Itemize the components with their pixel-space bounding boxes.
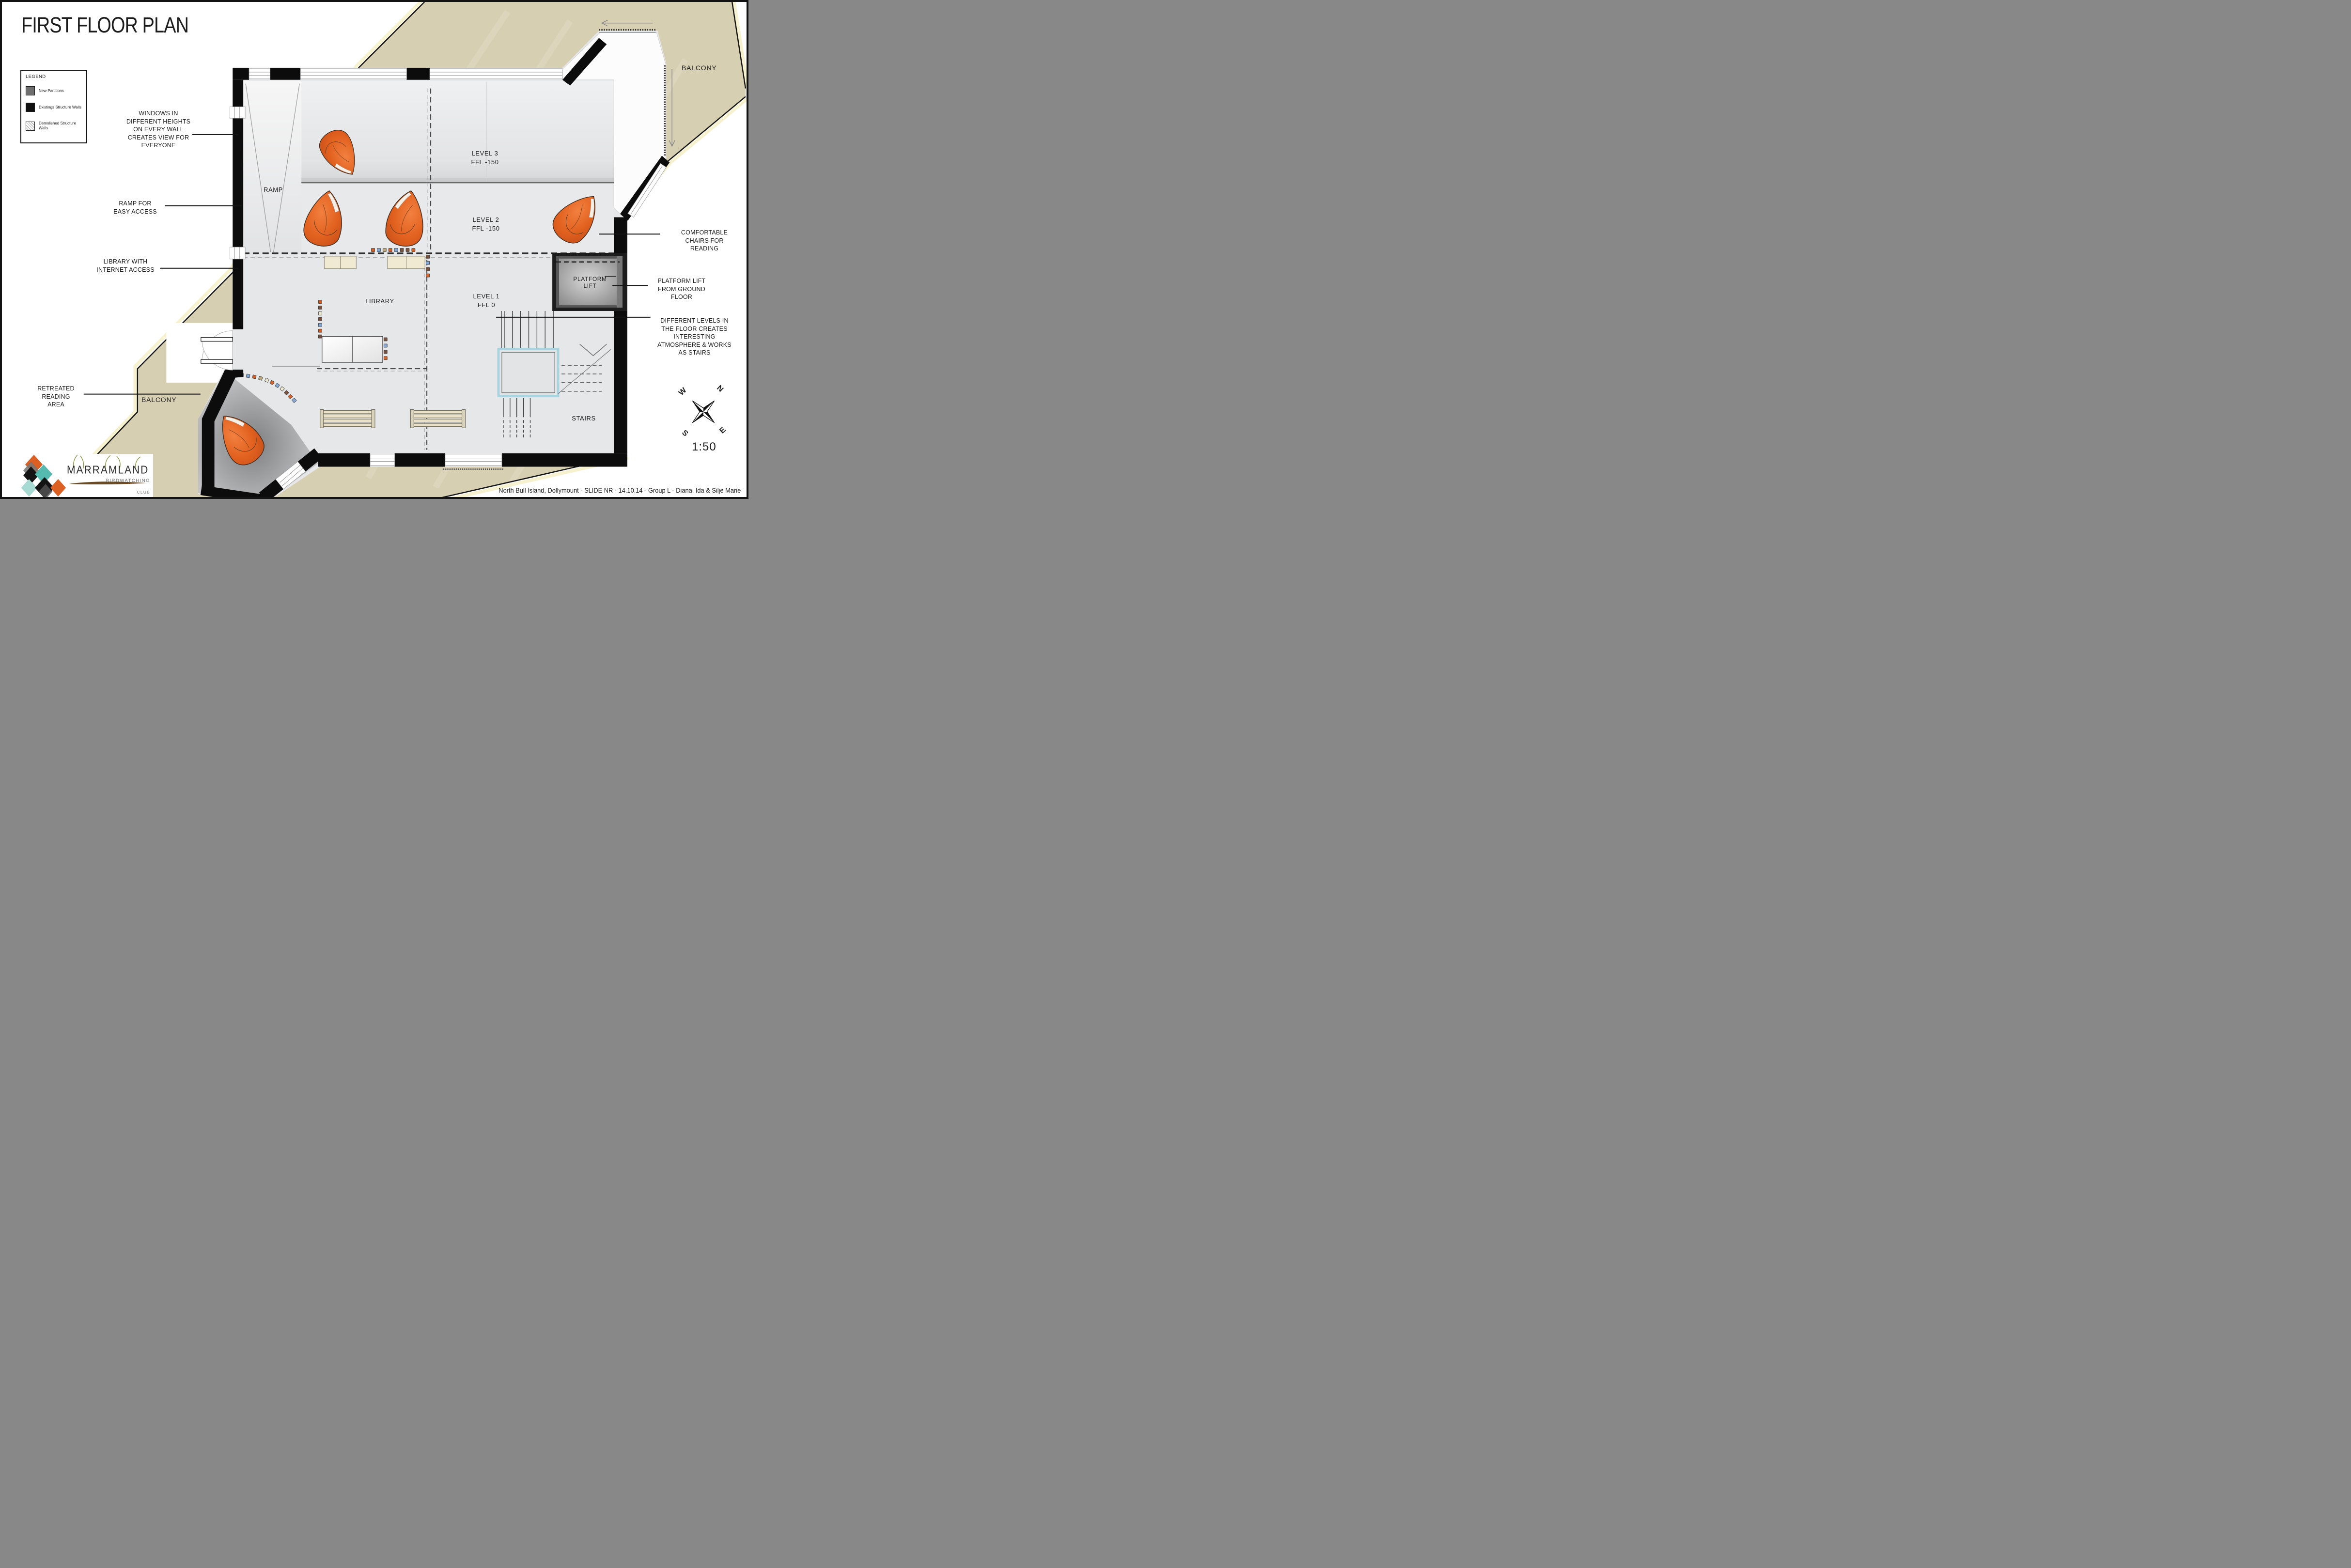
level3-name: LEVEL 3 — [471, 150, 498, 157]
drawing-sheet: FIRST FLOOR PLAN LEGEND New Partitions E… — [0, 0, 748, 499]
legend-item-label: New Partitions — [39, 89, 64, 93]
legend-item-new-partitions: New Partitions — [26, 86, 83, 95]
logo-club: CLUB — [137, 490, 150, 495]
compass-rose: N E S W — [675, 385, 732, 439]
label-balcony-lower: BALCONY — [141, 396, 177, 404]
label-ramp: RAMP — [264, 186, 283, 193]
stairwell-void — [498, 349, 558, 396]
floor-plan-drawing — [2, 2, 747, 497]
level2-name: LEVEL 2 — [472, 216, 499, 223]
legend-item-existing-walls: Existings Structure Walls — [26, 103, 83, 112]
legend-item-label: Existings Structure Walls — [39, 105, 81, 110]
legend-item-label: Demolished Structure Walls — [39, 121, 83, 131]
demolished-walls-swatch-icon — [26, 122, 35, 131]
note-levels: DIFFERENT LEVELS IN THE FLOOR CREATES IN… — [657, 317, 732, 357]
legend-box: LEGEND New Partitions Existings Structur… — [20, 70, 87, 143]
legend-item-demolished-walls: Demolished Structure Walls — [26, 121, 83, 131]
note-library: LIBRARY WITH INTERNET ACCESS — [94, 258, 157, 274]
logo-marramland: MARRAMLAND BIRDWATCHING CLUB — [20, 454, 153, 497]
label-level2: LEVEL 2 FFL -150 — [472, 216, 499, 232]
level1-name: LEVEL 1 — [473, 293, 499, 300]
legend-heading: LEGEND — [26, 74, 46, 79]
note-chairs: COMFORTABLE CHAIRS FOR READING — [673, 229, 736, 253]
note-retreated: RETREATED READING AREA — [33, 385, 79, 409]
label-stairs: STAIRS — [572, 415, 596, 422]
label-library: LIBRARY — [365, 297, 394, 305]
label-balcony-upper: BALCONY — [682, 64, 717, 72]
page-title: FIRST FLOOR PLAN — [21, 13, 188, 38]
ramp-floor — [243, 81, 301, 254]
label-platform-lift: PLATFORM LIFT — [571, 276, 609, 289]
note-lift: PLATFORM LIFT FROM GROUND FLOOR — [655, 277, 708, 301]
footer-caption: North Bull Island, Dollymount - SLIDE NR… — [498, 487, 741, 494]
new-partitions-swatch-icon — [26, 86, 35, 95]
scale-label: 1:50 — [692, 440, 716, 454]
logo-name: MARRAMLAND — [67, 464, 149, 477]
level3-ffl: FFL -150 — [471, 158, 498, 166]
compass-star-icon — [683, 391, 724, 432]
existing-walls-swatch-icon — [26, 103, 35, 112]
logo-subtitle: BIRDWATCHING — [106, 478, 150, 483]
compass-east: E — [718, 426, 728, 435]
note-windows: WINDOWS IN DIFFERENT HEIGHTS ON EVERY WA… — [125, 109, 192, 150]
level2-ffl: FFL -150 — [472, 225, 499, 232]
label-level1: LEVEL 1 FFL 0 — [473, 293, 499, 309]
level1-ffl: FFL 0 — [473, 301, 499, 309]
label-level3: LEVEL 3 FFL -150 — [471, 150, 498, 166]
note-ramp: RAMP FOR EASY ACCESS — [111, 200, 159, 216]
